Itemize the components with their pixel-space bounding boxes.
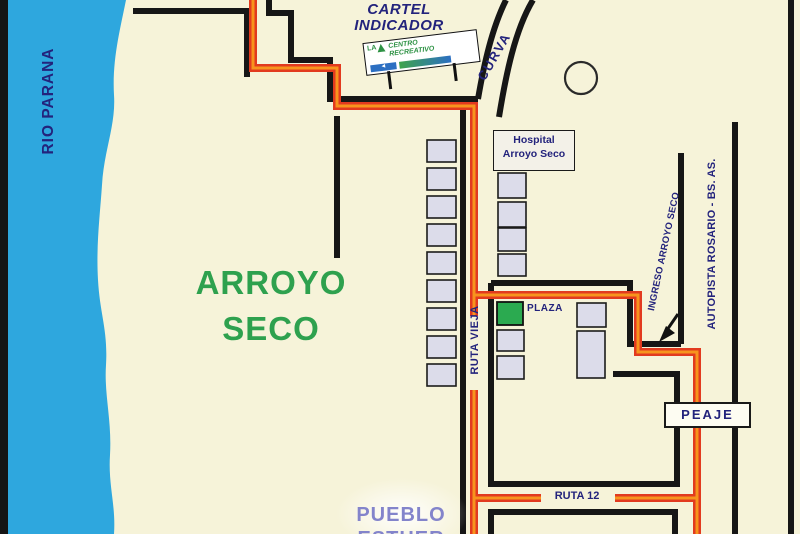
city-block [497, 356, 524, 379]
river-parana [0, 0, 126, 534]
map-border-left [0, 0, 8, 534]
city-block [427, 168, 456, 190]
plaza-square [497, 302, 523, 325]
road-top-left [133, 11, 247, 77]
autopista-label: AUTOPISTA ROSARIO - BS. AS. [706, 138, 718, 350]
city-block [577, 303, 606, 327]
city-block [427, 308, 456, 330]
ruta-12-label: RUTA 12 [546, 490, 608, 502]
road-curve-outer [499, 0, 533, 117]
map-graphics [0, 0, 800, 534]
map-canvas: RIO PARANA CARTEL INDICADOR CURVA Hospit… [0, 0, 800, 534]
city-block [427, 280, 456, 302]
city-block [427, 140, 456, 162]
city-block [498, 202, 526, 227]
peaje-sign: PEAJE [664, 402, 751, 428]
city-block [427, 364, 456, 386]
plaza-label: PLAZA [527, 303, 573, 314]
pueblo-label: PUEBLO [346, 504, 456, 527]
map-title: ARROYO SECO [158, 260, 384, 352]
billboard-logo: LA [367, 44, 377, 52]
cartel-line1: CARTEL [329, 2, 469, 18]
city-block [498, 254, 526, 276]
city-block [427, 252, 456, 274]
city-block [577, 331, 605, 378]
hospital-line1: Hospital [494, 134, 574, 148]
title-line2: SECO [158, 306, 384, 352]
left-arrow-icon: ◄ [370, 62, 397, 72]
river-label: RIO PARANA [40, 39, 58, 163]
tree-icon [377, 43, 386, 52]
billboard-text: CENTRO RECREATIVO [388, 37, 435, 57]
city-block [497, 330, 524, 351]
city-block [498, 173, 526, 198]
cartel-indicador-label: CARTEL INDICADOR [329, 2, 469, 34]
city-block [427, 224, 456, 246]
title-line1: ARROYO [158, 260, 384, 306]
city-block [427, 196, 456, 218]
city-block [498, 228, 526, 251]
esther-label: ESTHER [346, 528, 456, 534]
direction-arrow [659, 314, 678, 342]
roundabout-circle [565, 62, 597, 94]
road-block-below-ruta12 [491, 512, 675, 534]
hospital-sign: Hospital Arroyo Seco [493, 130, 575, 171]
city-block [427, 336, 456, 358]
hospital-line2: Arroyo Seco [494, 148, 574, 162]
ruta-vieja-label: RUTA VIEJA [469, 296, 481, 384]
